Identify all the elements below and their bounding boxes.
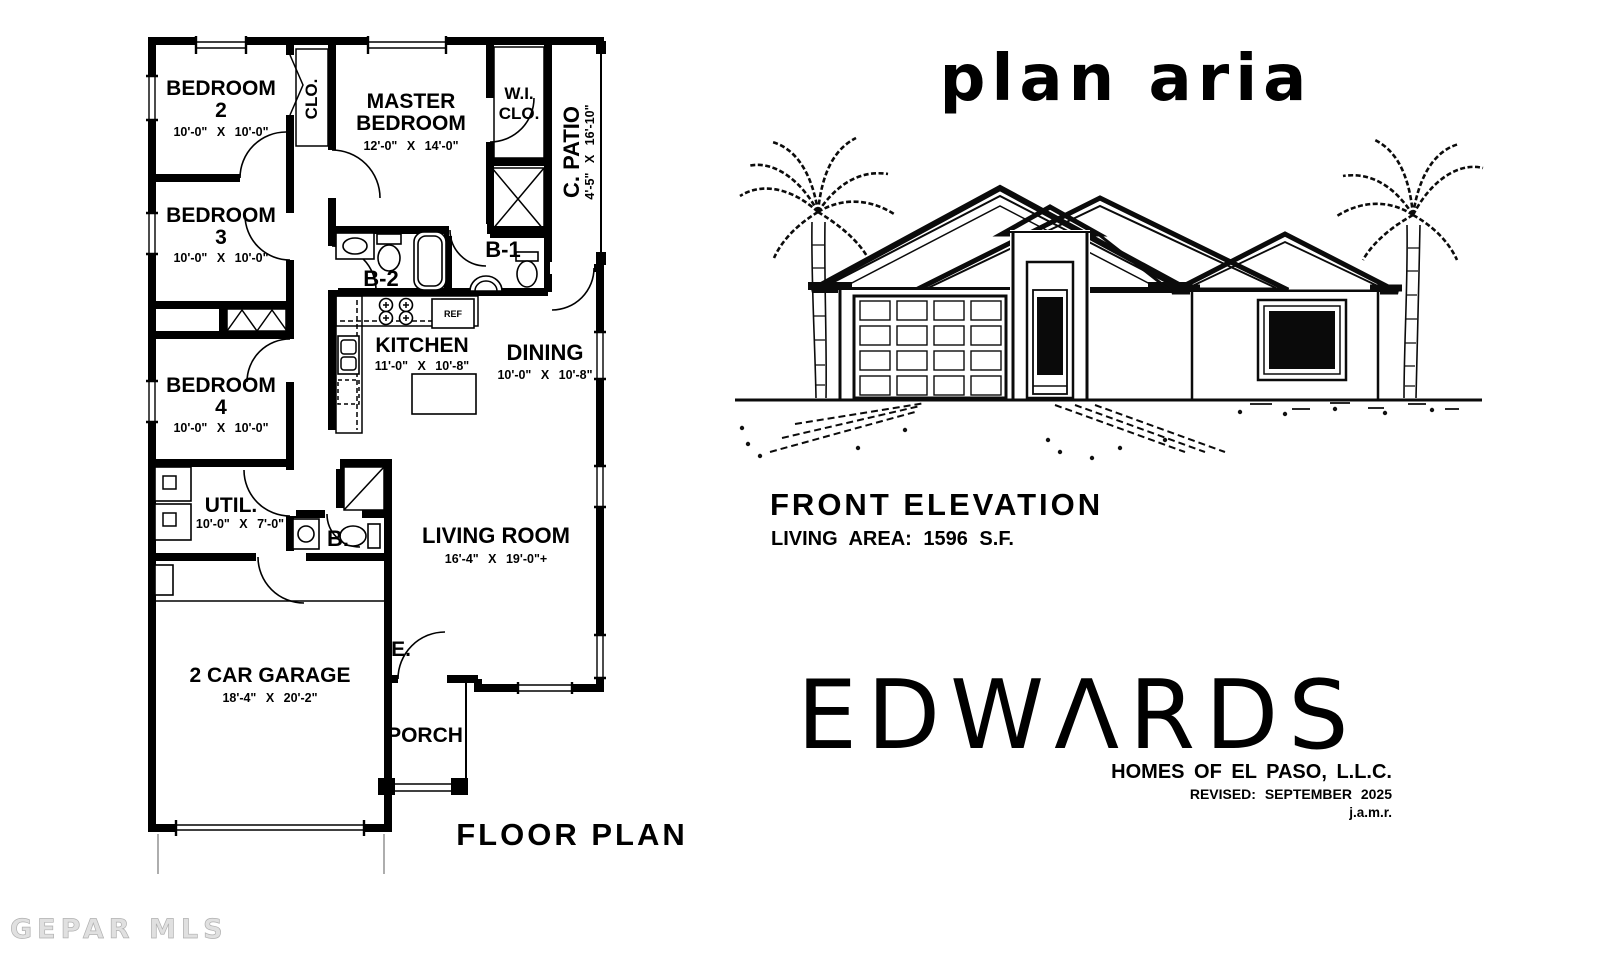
room-label-closet: CLO. xyxy=(302,79,321,120)
room-label-bedroom3: BEDROOM xyxy=(166,204,276,227)
room-dims-living: 16'-4" X 19'-0"+ xyxy=(445,552,547,566)
right-wing-elevation xyxy=(1168,234,1402,400)
room-label-master-1: MASTER xyxy=(367,90,456,113)
room-label-bedroom4: BEDROOM xyxy=(166,374,276,397)
room-label-garage: 2 CAR GARAGE xyxy=(189,664,350,687)
room-label-porch: PORCH xyxy=(387,724,463,747)
room-label-living: LIVING ROOM xyxy=(422,523,570,548)
room-dims-bedroom2: 10'-0" X 10'-0" xyxy=(173,125,268,139)
floor-plan-caption: FLOOR PLAN xyxy=(456,817,688,852)
room-dims-util: 10'-0" X 7'-0" xyxy=(196,517,284,531)
room-label-wic-1: W.I. xyxy=(504,84,533,103)
ground-line xyxy=(735,400,1482,460)
room-label-kitchen: KITCHEN xyxy=(375,334,468,357)
brand-drafter-initials: j.a.m.r. xyxy=(1348,805,1392,820)
mls-watermark: GEPAR MLS xyxy=(10,914,228,945)
elevation-caption: FRONT ELEVATION xyxy=(770,487,1103,522)
room-label-wic-2: CLO. xyxy=(499,104,540,123)
room-number-bedroom2: 2 xyxy=(215,99,227,122)
garage-elevation xyxy=(808,188,1192,400)
brand-logo-text: EDWΛRDS xyxy=(797,661,1359,771)
room-label-halfbath: B. xyxy=(327,526,349,551)
plan-title: plan aria xyxy=(940,42,1313,116)
room-dims-dining: 10'-0" X 10'-8" xyxy=(497,368,592,382)
drawing-canvas: REF BEDROOM 2 10'-0" X 10'-0" BEDROOM 3 … xyxy=(0,0,1600,980)
room-label-patio: C. PATIO xyxy=(559,106,584,198)
entry-tower-elevation xyxy=(1002,207,1172,400)
patio-outline xyxy=(596,41,606,265)
room-label-util: UTIL. xyxy=(205,494,258,517)
room-dims-bedroom4: 10'-0" X 10'-0" xyxy=(173,421,268,435)
floor-plan: REF BEDROOM 2 10'-0" X 10'-0" BEDROOM 3 … xyxy=(145,35,688,874)
room-label-dining: DINING xyxy=(507,340,584,365)
room-label-bath2: B-2 xyxy=(363,266,398,291)
room-dims-garage: 18'-4" X 20'-2" xyxy=(222,691,317,705)
room-label-bedroom2: BEDROOM xyxy=(166,77,276,100)
room-dims-patio: 4'-5" X 16'-10" xyxy=(583,104,597,199)
brand-tagline: HOMES OF EL PASO, L.L.C. xyxy=(1111,761,1392,783)
brand-block: EDWΛRDS HOMES OF EL PASO, L.L.C. REVISED… xyxy=(797,661,1392,820)
plan-sheet: REF BEDROOM 2 10'-0" X 10'-0" BEDROOM 3 … xyxy=(0,0,1600,980)
ground-dots xyxy=(740,407,1434,460)
driveway-lines xyxy=(158,834,384,874)
room-label-bath1: B-1 xyxy=(485,237,520,262)
room-dims-bedroom3: 10'-0" X 10'-0" xyxy=(173,251,268,265)
room-label-master-2: BEDROOM xyxy=(356,112,466,135)
ref-label: REF xyxy=(444,309,463,319)
living-area-label: LIVING AREA: 1596 S.F. xyxy=(771,528,1014,550)
room-dims-kitchen: 11'-0" X 10'-8" xyxy=(375,359,470,373)
front-elevation-drawing xyxy=(735,138,1483,460)
room-label-entry: E. xyxy=(391,638,411,661)
room-dims-master: 12'-0" X 14'-0" xyxy=(363,139,458,153)
window-symbols xyxy=(145,35,607,836)
brand-revised-date: REVISED: SEPTEMBER 2025 xyxy=(1190,786,1392,802)
house-elevation xyxy=(808,188,1402,400)
room-number-bedroom4: 4 xyxy=(215,396,227,419)
room-number-bedroom3: 3 xyxy=(215,226,227,249)
window-elevation xyxy=(1258,300,1346,380)
